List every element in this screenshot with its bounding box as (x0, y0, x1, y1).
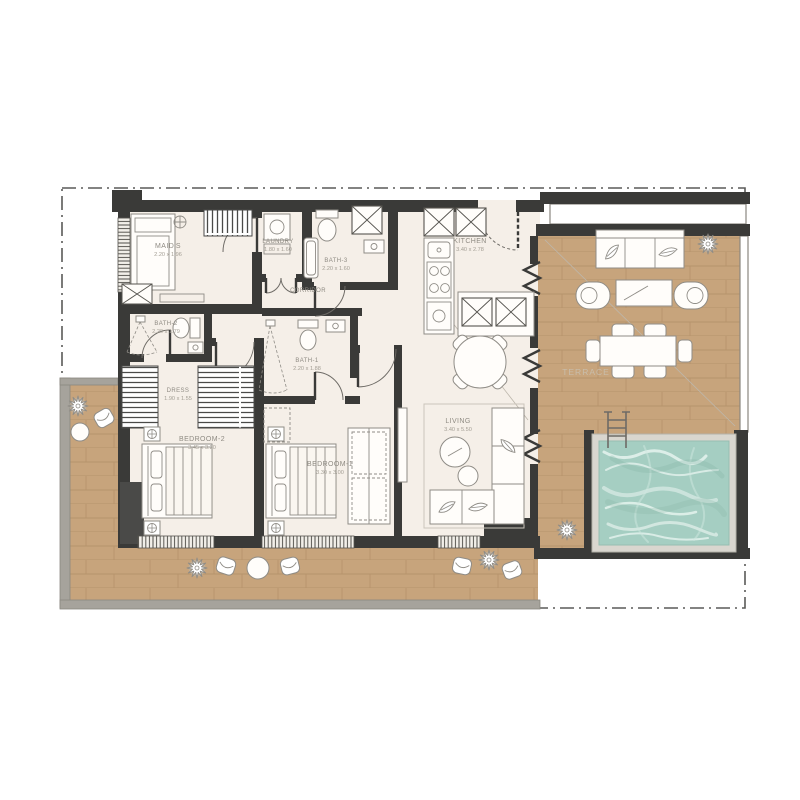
kitchen-cabinet (462, 298, 492, 326)
bedroom2-wall-block (120, 482, 144, 544)
maids-wardrobe (204, 210, 252, 236)
room-label-bath1: BATH-1 (295, 358, 319, 364)
sink (326, 320, 345, 332)
coffee-table (458, 466, 478, 486)
toilet (318, 219, 336, 241)
side-table (268, 521, 284, 535)
window-maids (118, 218, 130, 292)
room-dims-bath3: 2.20 x 1.60 (322, 266, 350, 272)
toilet-tank (316, 210, 338, 218)
shaft (352, 206, 382, 234)
bed (142, 444, 212, 518)
toilet (300, 330, 316, 350)
shower-head (266, 320, 275, 326)
room-dims-bedroom2: 3.45 x 3.20 (188, 445, 216, 451)
wardrobe-tall (348, 428, 390, 524)
room-dims-bath2: 2.20 x 1.79 (152, 329, 180, 335)
room-dims-bedroom1: 3.30 x 3.00 (316, 470, 344, 476)
floor-plan-page: MAID'S 2.20 x 1.96 LAUNDRY 1.80 x 1.60 B… (0, 0, 800, 800)
coffee-set (576, 280, 708, 309)
side-table (144, 521, 160, 535)
bed (266, 444, 336, 518)
side-table-round (71, 423, 89, 441)
lounge-chair (452, 556, 473, 575)
terrace-parapet-left (60, 378, 70, 608)
terrace-parapet-bottom (60, 600, 540, 609)
sink (188, 342, 203, 353)
room-dims-maids: 2.20 x 1.96 (154, 252, 182, 258)
room-label-maids: MAID'S (155, 243, 181, 250)
kitchen-cabinet (424, 208, 454, 236)
terrace-parapet-right (740, 236, 748, 432)
kitchen-cabinet (456, 208, 486, 236)
tv-console (398, 408, 407, 482)
terrace-parapet-top-left (60, 378, 118, 385)
room-label-bedroom2: BEDROOM-2 (179, 436, 225, 443)
outdoor-sofa (596, 230, 684, 268)
room-label-bath2: BATH-2 (154, 321, 178, 327)
room-label-bedroom1: BEDROOM-1 (307, 461, 353, 468)
room-dims-laundry: 1.80 x 1.60 (264, 247, 292, 253)
room-label-corridor: CORRIDOR (290, 288, 326, 294)
planter-band (550, 204, 746, 224)
window-bedroom2 (138, 536, 214, 548)
wardrobe (122, 366, 158, 428)
room-dims-dress: 1.90 x 1.55 (164, 396, 192, 402)
room-label-laundry: LAUNDRY (262, 239, 293, 245)
room-label-terrace: TERRACE (562, 367, 610, 377)
washing-machine (264, 214, 290, 240)
room-label-dress: DRESS (167, 388, 190, 394)
room-dims-bath1: 2.20 x 1.88 (293, 366, 321, 372)
shower-head (136, 316, 145, 322)
side-table-round (247, 557, 269, 579)
kitchen-cabinet (496, 298, 526, 326)
room-label-bath3: BATH-3 (324, 258, 348, 264)
room-label-kitchen: KITCHEN (453, 238, 487, 245)
window-living (438, 536, 480, 548)
toilet-tank (190, 318, 200, 338)
wardrobe (198, 366, 254, 428)
side-table (144, 427, 160, 441)
sink (364, 240, 384, 253)
round-dining-table (451, 333, 509, 391)
toilet-tank (298, 320, 318, 328)
room-label-living: LIVING (445, 418, 470, 425)
side-table (268, 427, 284, 441)
floor-plan-drawing: MAID'S 2.20 x 1.96 LAUNDRY 1.80 x 1.60 B… (0, 0, 800, 800)
room-dims-living: 3.40 x 5.50 (444, 427, 472, 433)
window-bedroom1 (262, 536, 354, 548)
room-dims-kitchen: 3.40 x 2.78 (456, 247, 484, 253)
